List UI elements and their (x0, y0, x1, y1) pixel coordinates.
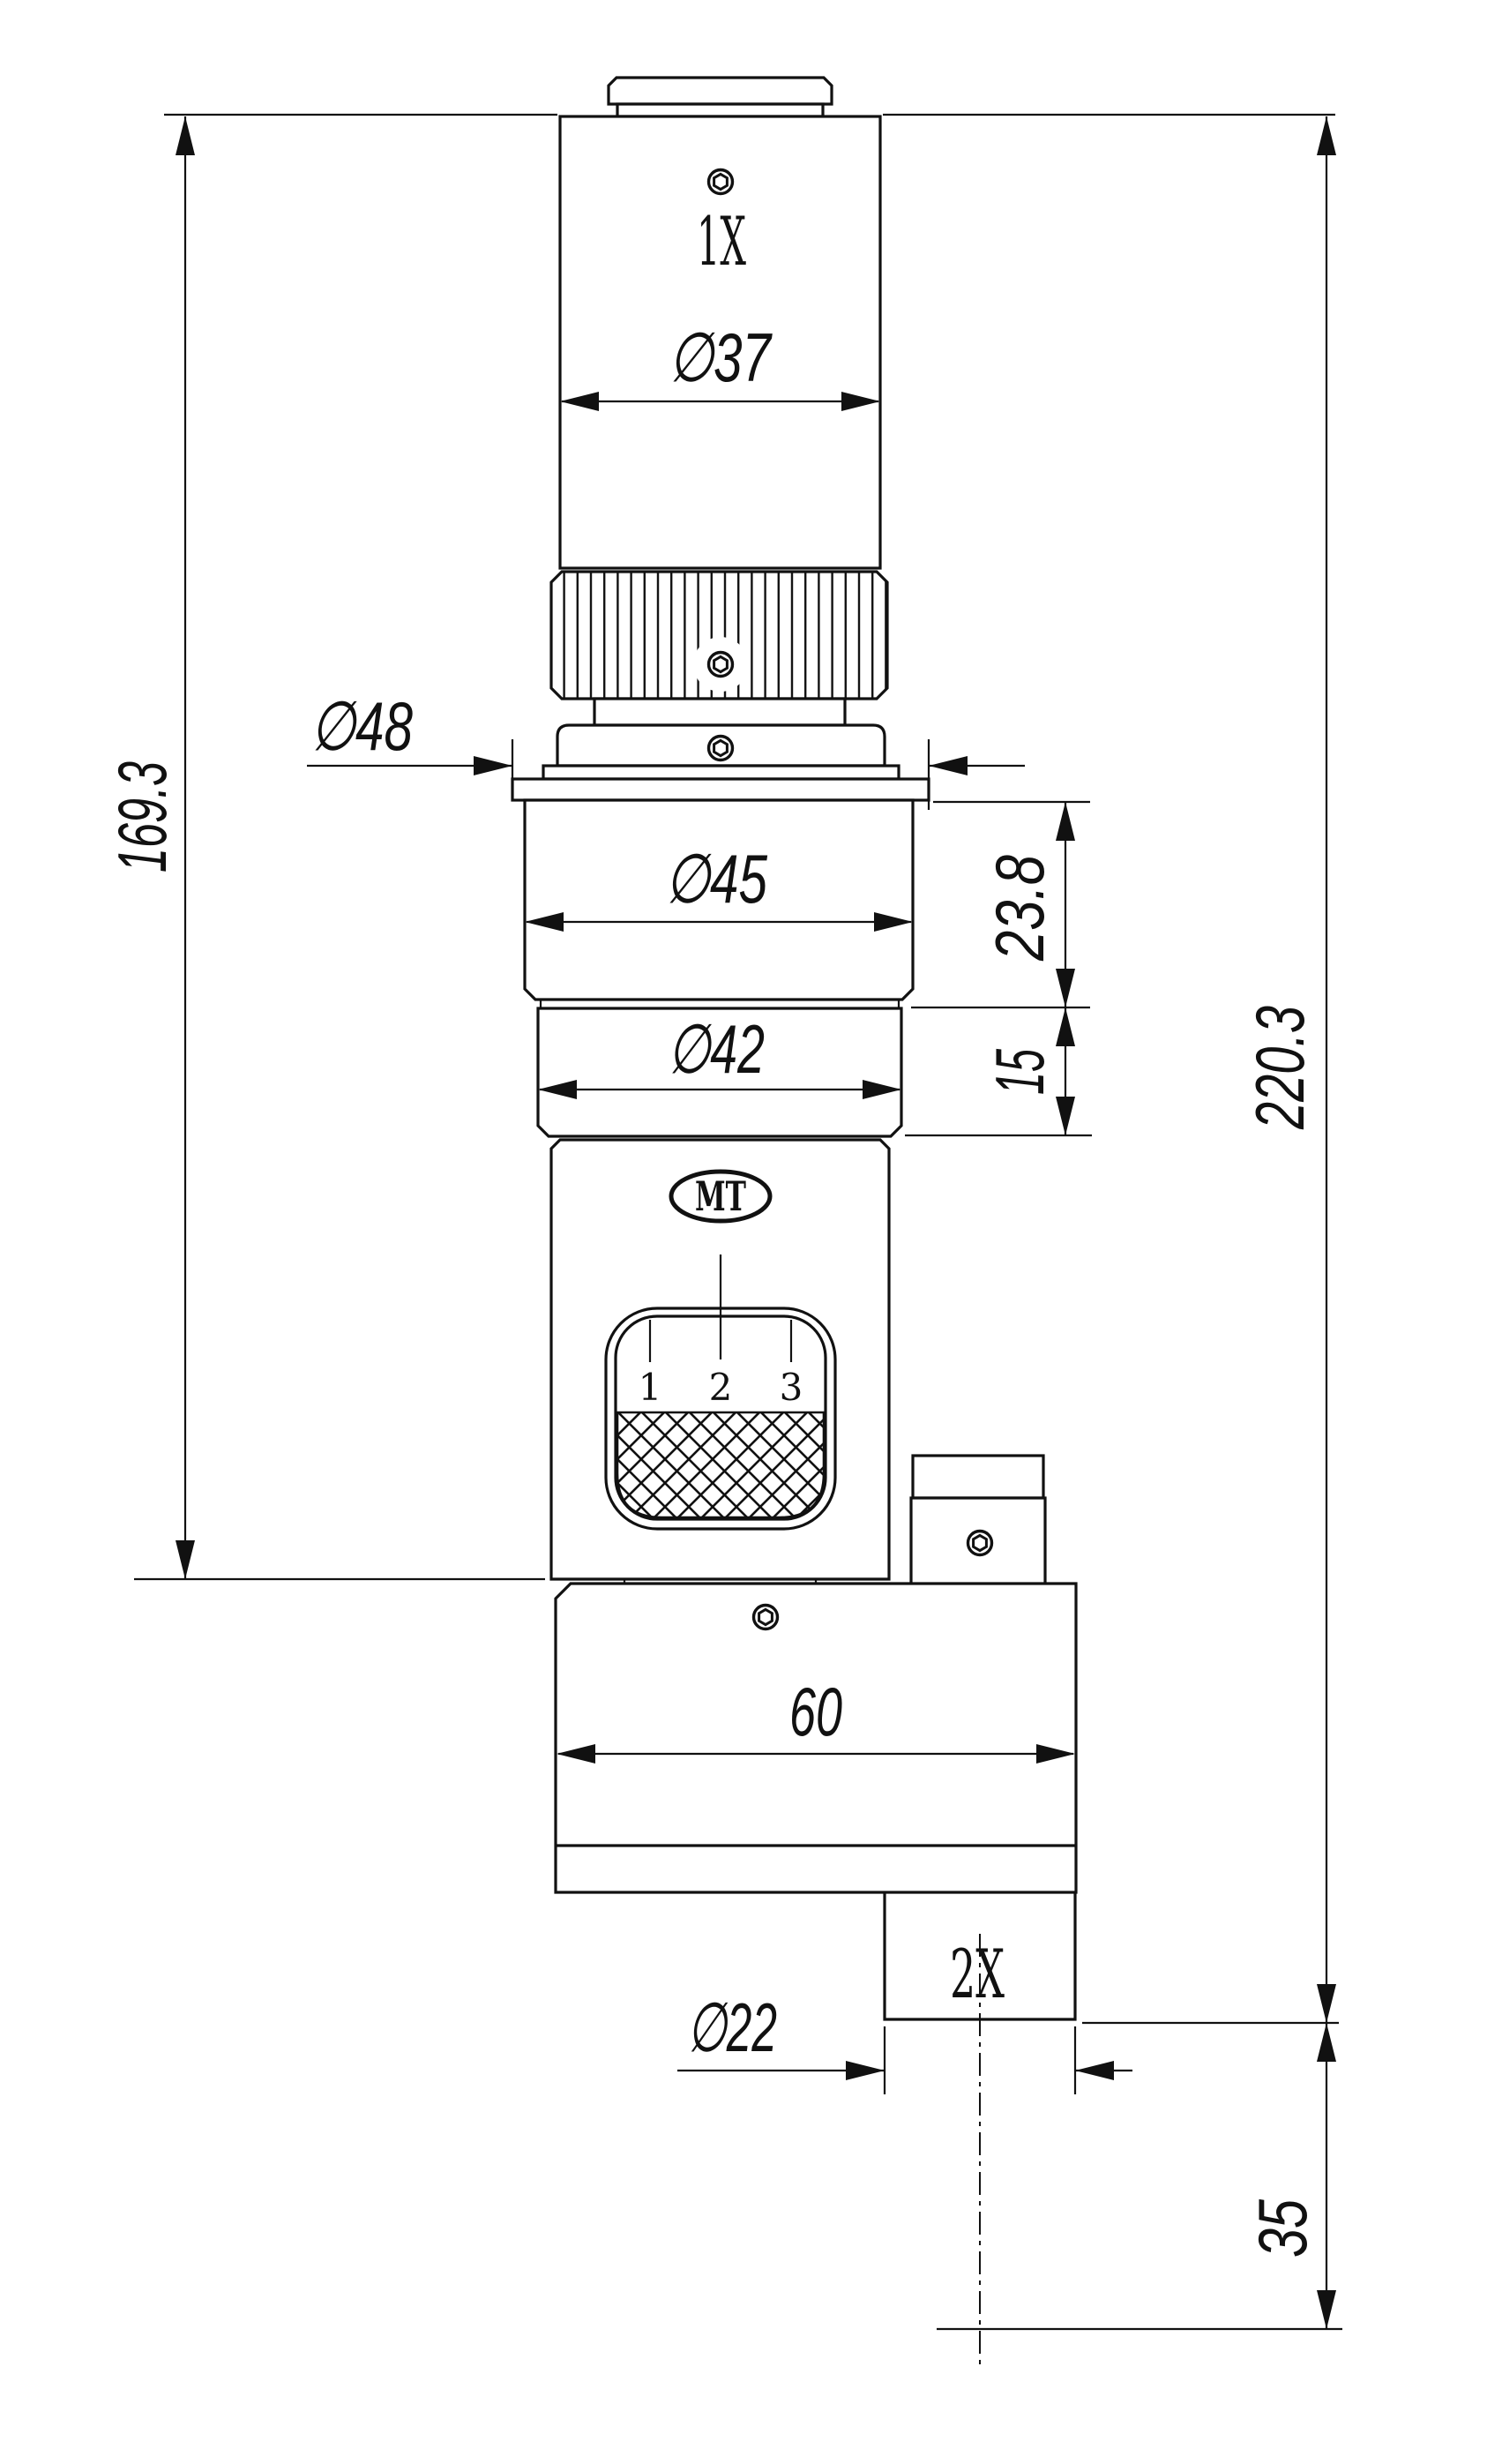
scale-mark-2: 2 (709, 1366, 733, 1409)
zoom-knob-knurl (617, 1412, 824, 1517)
top-cap-lower (617, 104, 823, 116)
dimension-220-3: 220.3 (1241, 116, 1336, 2023)
hex-screw-icon (709, 653, 733, 677)
dim23-8-value: 23.8 (981, 855, 1058, 962)
flange-step (543, 766, 899, 779)
dimension-35: 35 (1244, 2023, 1336, 2329)
hex-screw-icon (709, 170, 733, 194)
dimension-15: 15 (981, 1007, 1075, 1135)
dim15-value: 15 (981, 1049, 1058, 1095)
hex-screw-icon (709, 737, 733, 760)
dia37-value: ∅37 (669, 318, 773, 396)
mt-logo-text: MT (695, 1172, 746, 1220)
dia42-value: ∅42 (668, 1010, 765, 1088)
wide-flange-48 (512, 779, 929, 800)
neck (594, 699, 845, 725)
side-magnification-label: 2X (950, 1935, 1005, 2013)
top-magnification-label: 1X (697, 202, 746, 281)
hex-screw-icon (754, 1606, 778, 1629)
dim169-3-value: 169.3 (103, 761, 181, 873)
dim220-3-value: 220.3 (1241, 1006, 1319, 1130)
dimension-dia22: ∅22 (677, 1988, 1132, 2080)
dim60-value: 60 (789, 1673, 842, 1750)
dim35-value: 35 (1244, 2199, 1321, 2258)
top-cap-upper (609, 78, 832, 104)
dia45-value: ∅45 (665, 840, 767, 917)
technical-drawing: MT 1 2 3 ∅37 (0, 0, 1487, 2464)
dimension-23-8: 23.8 (981, 802, 1075, 1007)
dimension-169-3: 169.3 (103, 116, 195, 1579)
scale-mark-1: 1 (639, 1366, 662, 1409)
dia22-value: ∅22 (687, 1988, 777, 2066)
hex-screw-icon (968, 1532, 992, 1555)
scale-mark-3: 3 (780, 1366, 803, 1409)
side-port-cap (913, 1456, 1043, 1498)
dia48-value: ∅48 (310, 687, 413, 765)
